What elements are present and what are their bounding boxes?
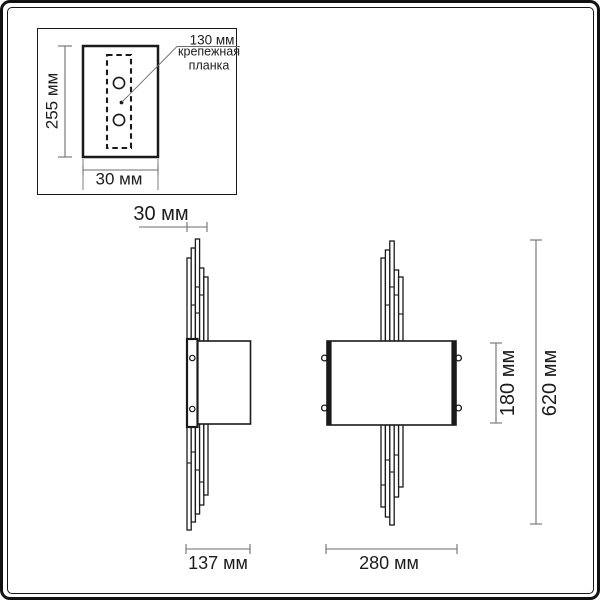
front-shade-left-trim (327, 341, 332, 425)
front-shade-right-trim (451, 341, 456, 425)
callout-name-label: крепежная планка (178, 46, 240, 73)
front-view-shade (327, 341, 456, 425)
side-depth-dimension-label: 30 мм (133, 204, 188, 224)
front-view-drawing (322, 241, 462, 525)
side-view-drawing (187, 239, 251, 530)
front-width-dimension-label: 280 мм (359, 554, 419, 572)
total-height-dimension-label: 620 мм (540, 350, 560, 416)
mounting-plate-detail-drawing (83, 46, 158, 157)
wall-lamp-dimension-sheet: 255 мм 30 мм 130 мм крепежная планка 30 … (0, 0, 600, 600)
side-view-shade (198, 341, 251, 424)
side-width-dimension-label: 137 мм (188, 554, 248, 572)
side-view-screw-top (190, 355, 195, 360)
plate-height-dimension-label: 255 мм (44, 73, 61, 129)
shade-height-dimension-label: 180 мм (498, 350, 518, 416)
plate-width-dimension-label: 30 мм (95, 171, 142, 188)
side-view-screw-bottom (190, 406, 195, 411)
technical-drawing (0, 0, 600, 600)
side-view-mount-plate (187, 339, 198, 427)
